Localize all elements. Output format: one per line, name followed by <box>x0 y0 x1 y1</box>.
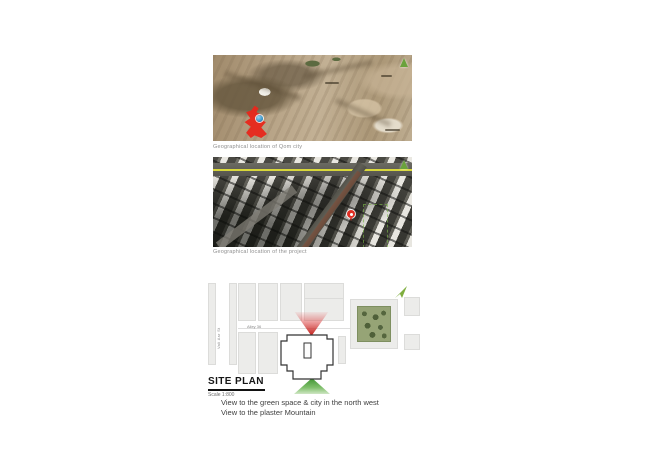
figure-caption: Geographical location of Qom city <box>213 144 412 150</box>
site-plan-title: SITE PLAN <box>208 376 264 387</box>
street-tree-line <box>302 171 362 247</box>
city-block <box>404 297 420 316</box>
map-place-label <box>385 129 400 131</box>
city-marker-icon <box>256 115 263 122</box>
green-space-park <box>357 306 391 342</box>
location-pin-icon <box>347 210 356 219</box>
city-block <box>258 283 278 321</box>
highlighted-road <box>213 169 412 171</box>
mountain-ridge <box>303 60 373 79</box>
note-line: View to the plaster Mountain <box>221 408 316 417</box>
street-label-alley: Alley 36 <box>247 324 261 329</box>
street-label-vertical: Vali Asr St <box>216 301 221 349</box>
mountain-ridge <box>224 71 302 101</box>
city-block <box>208 283 216 365</box>
qom-satellite-map <box>213 55 412 141</box>
title-underline <box>208 389 265 391</box>
site-outline <box>363 204 388 247</box>
city-block <box>238 332 256 374</box>
city-block <box>238 283 256 321</box>
project-aerial-map <box>213 157 412 247</box>
figure-caption: Geographical location of the project <box>213 249 412 255</box>
qom-city-boundary <box>243 105 269 138</box>
north-arrow-icon <box>400 58 408 67</box>
map-place-label <box>325 82 339 84</box>
city-block <box>229 283 237 365</box>
city-block <box>338 336 346 364</box>
note-line: View to the green space & city in the no… <box>221 398 379 407</box>
north-arrow-icon <box>400 160 408 169</box>
city-block <box>404 334 420 350</box>
north-arrow-icon <box>394 285 408 299</box>
diagonal-street <box>216 185 297 247</box>
map-place-label <box>381 75 392 77</box>
building-footprint <box>277 333 337 381</box>
presentation-page: Geographical location of Qom city Geogra… <box>0 0 650 459</box>
mountain-ridge <box>335 98 392 127</box>
city-block <box>258 332 278 374</box>
